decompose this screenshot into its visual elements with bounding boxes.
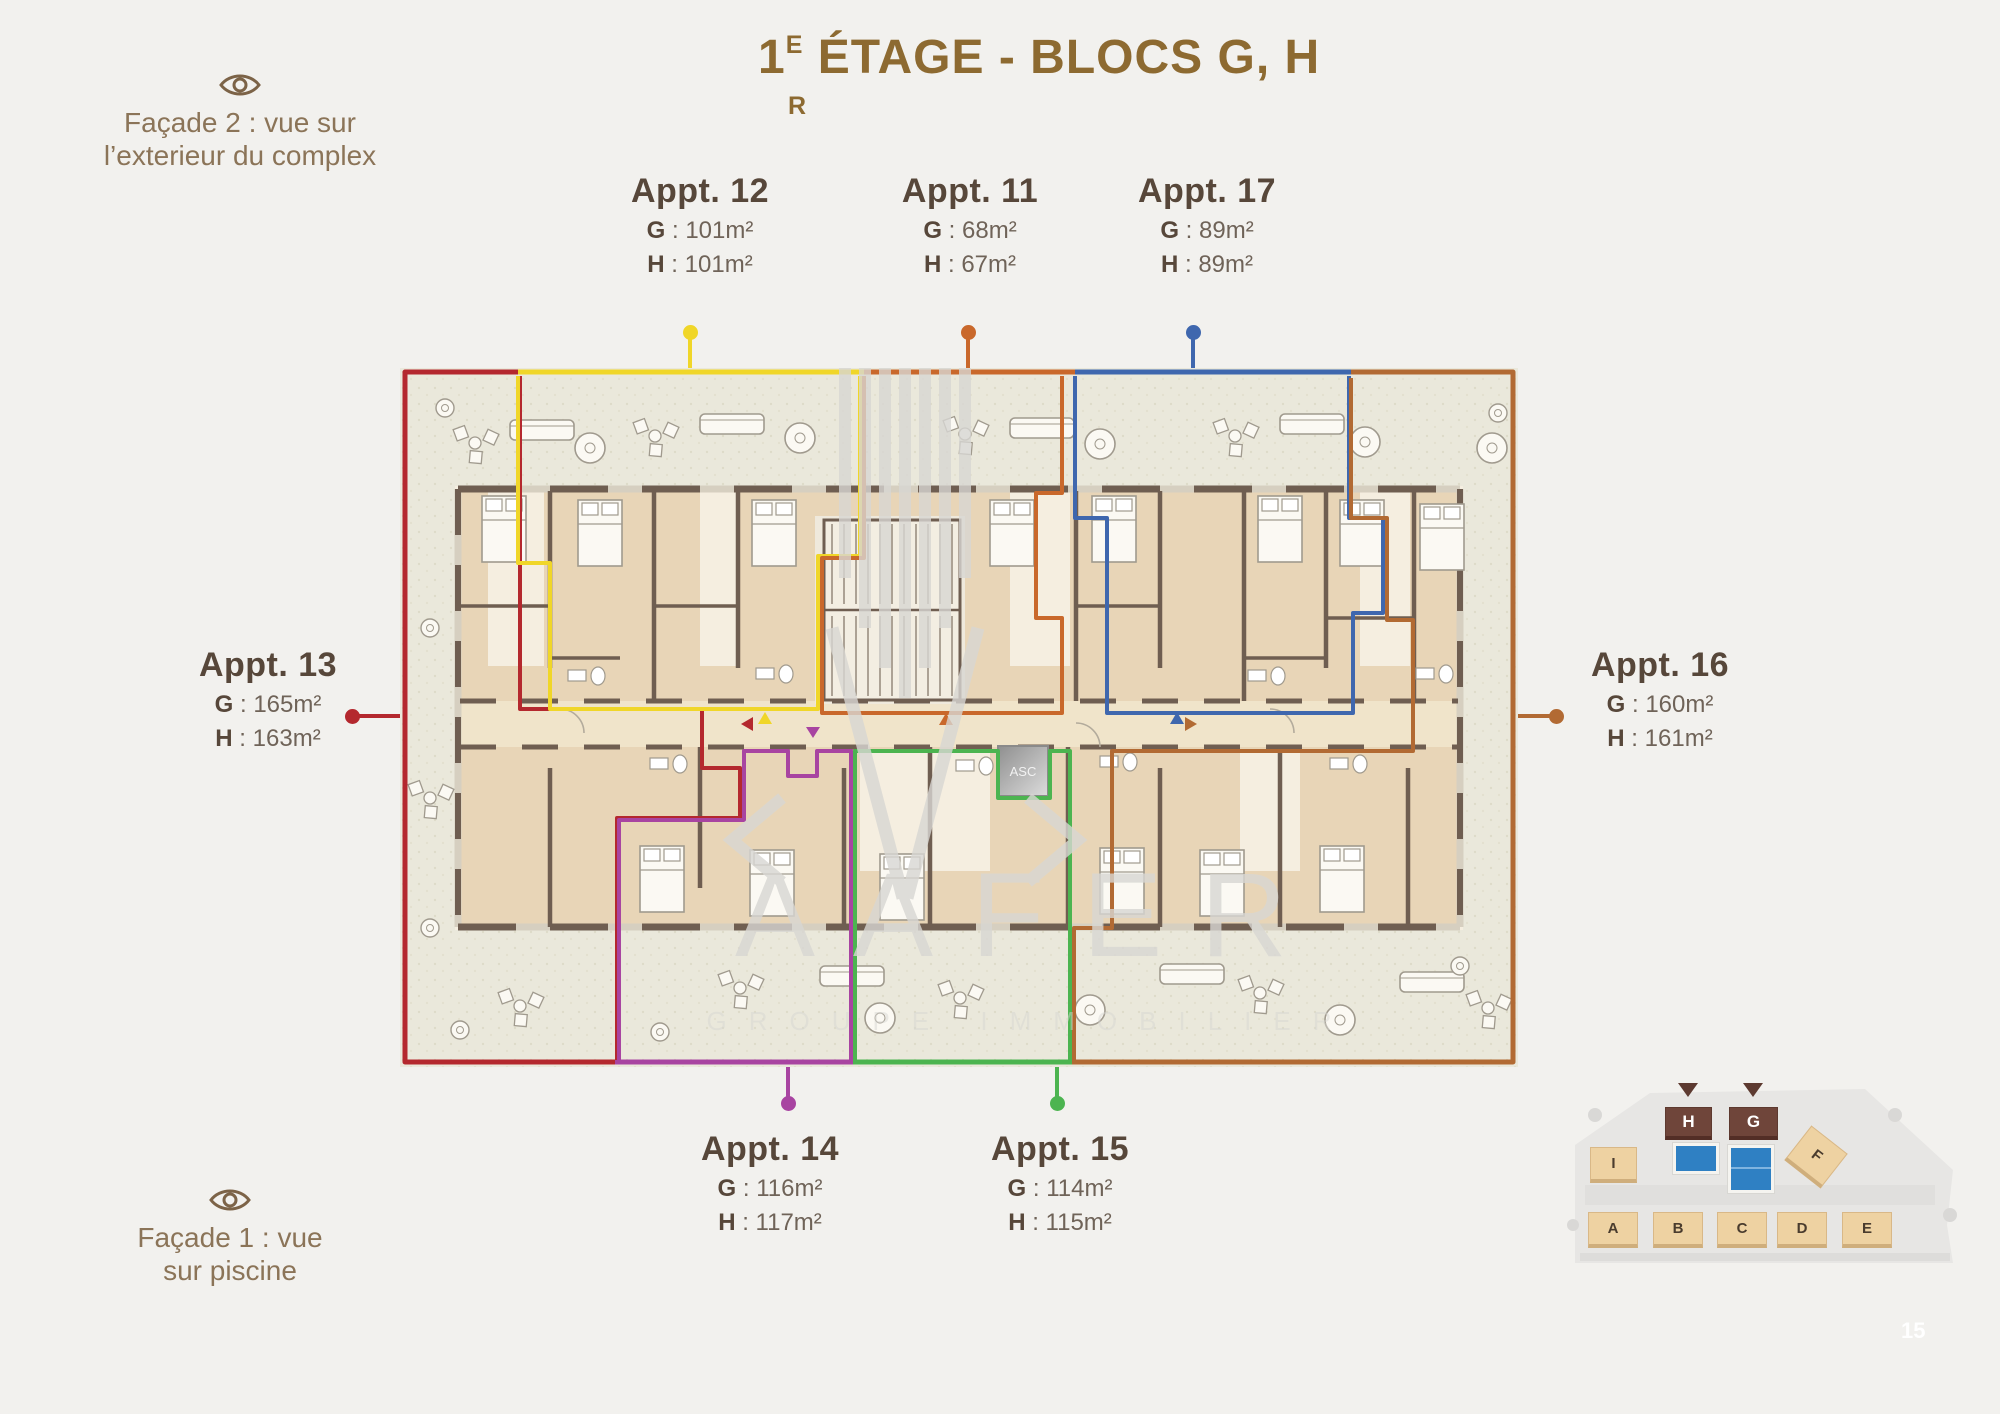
watermark-logo-text: AAFER: [735, 848, 1325, 982]
apartment-label-16: Appt. 16 G : 160m² H : 161m²: [1540, 646, 1780, 753]
apartment-label-13: Appt. 13 G : 165m² H : 163m²: [148, 646, 388, 753]
apartment-name: Appt. 12: [580, 172, 820, 211]
pool: [1728, 1145, 1774, 1193]
facade-1-line1: Façade 1 : vue: [70, 1221, 390, 1254]
elevator-label: ASC: [1010, 764, 1037, 779]
elevator: ASC: [998, 746, 1048, 796]
brochure-page: 1E ÉTAGE - BLOCS G, H R Façade 2 : vue s…: [0, 0, 2000, 1414]
floor-plan: ASC: [400, 368, 1518, 1067]
title-superscript-r: R: [788, 92, 807, 121]
site-map-block-c: C: [1717, 1212, 1767, 1248]
facade-2-line1: Façade 2 : vue sur: [80, 106, 400, 139]
title-rest: ÉTAGE - BLOCS G, H: [803, 31, 1320, 84]
title-superscript-e: E: [786, 31, 804, 59]
leader-line-appt12: [688, 337, 692, 371]
apartment-name: Appt. 15: [940, 1130, 1180, 1169]
title-number: 1: [758, 31, 786, 84]
apartment-label-11: Appt. 11 G : 68m² H : 67m²: [850, 172, 1090, 279]
apartment-name: Appt. 13: [148, 646, 388, 685]
leader-dot-appt14: [781, 1096, 796, 1111]
watermark-tagline: GROUPE IMMOBILIER: [706, 1006, 1353, 1036]
pool: [1673, 1143, 1719, 1174]
eye-icon: [217, 70, 263, 100]
leader-line-appt17: [1191, 337, 1195, 371]
facade-2-line2: l’exterieur du complex: [80, 139, 400, 172]
apartment-name: Appt. 14: [650, 1130, 890, 1169]
site-map-block-h: H: [1665, 1107, 1712, 1140]
leader-line-appt13: [357, 714, 403, 718]
apartment-label-15: Appt. 15 G : 114m² H : 115m²: [940, 1130, 1180, 1237]
leader-line-appt15: [1055, 1064, 1059, 1098]
facade-1-note: Façade 1 : vue sur piscine: [70, 1185, 390, 1287]
site-map-block-a: A: [1588, 1212, 1638, 1248]
site-map: H G I F A B C D E: [1555, 1075, 1975, 1355]
site-map-block-d: D: [1777, 1212, 1827, 1248]
site-map-block-e: E: [1842, 1212, 1892, 1248]
apartment-label-17: Appt. 17 G : 89m² H : 89m²: [1087, 172, 1327, 279]
leader-line-appt11: [966, 337, 970, 371]
site-map-block-g: G: [1729, 1107, 1778, 1140]
apartment-name: Appt. 11: [850, 172, 1090, 211]
eye-icon: [207, 1185, 253, 1215]
page-title: 1E ÉTAGE - BLOCS G, H R: [758, 30, 1320, 85]
apartment-name: Appt. 17: [1087, 172, 1327, 211]
block-h-arrow-icon: [1678, 1083, 1698, 1097]
apartment-name: Appt. 16: [1540, 646, 1780, 685]
apartment-label-14: Appt. 14 G : 116m² H : 117m²: [650, 1130, 890, 1237]
leader-line-appt14: [786, 1064, 790, 1098]
apartment-label-12: Appt. 12 G : 101m² H : 101m²: [580, 172, 820, 279]
block-g-arrow-icon: [1743, 1083, 1763, 1097]
site-map-block-i: I: [1590, 1147, 1637, 1183]
site-map-block-b: B: [1653, 1212, 1703, 1248]
leader-dot-appt15: [1050, 1096, 1065, 1111]
facade-1-line2: sur piscine: [70, 1254, 390, 1287]
facade-2-note: Façade 2 : vue sur l’exterieur du comple…: [80, 70, 400, 172]
leader-line-appt16: [1514, 714, 1554, 718]
page-number: 15: [1901, 1318, 1925, 1344]
